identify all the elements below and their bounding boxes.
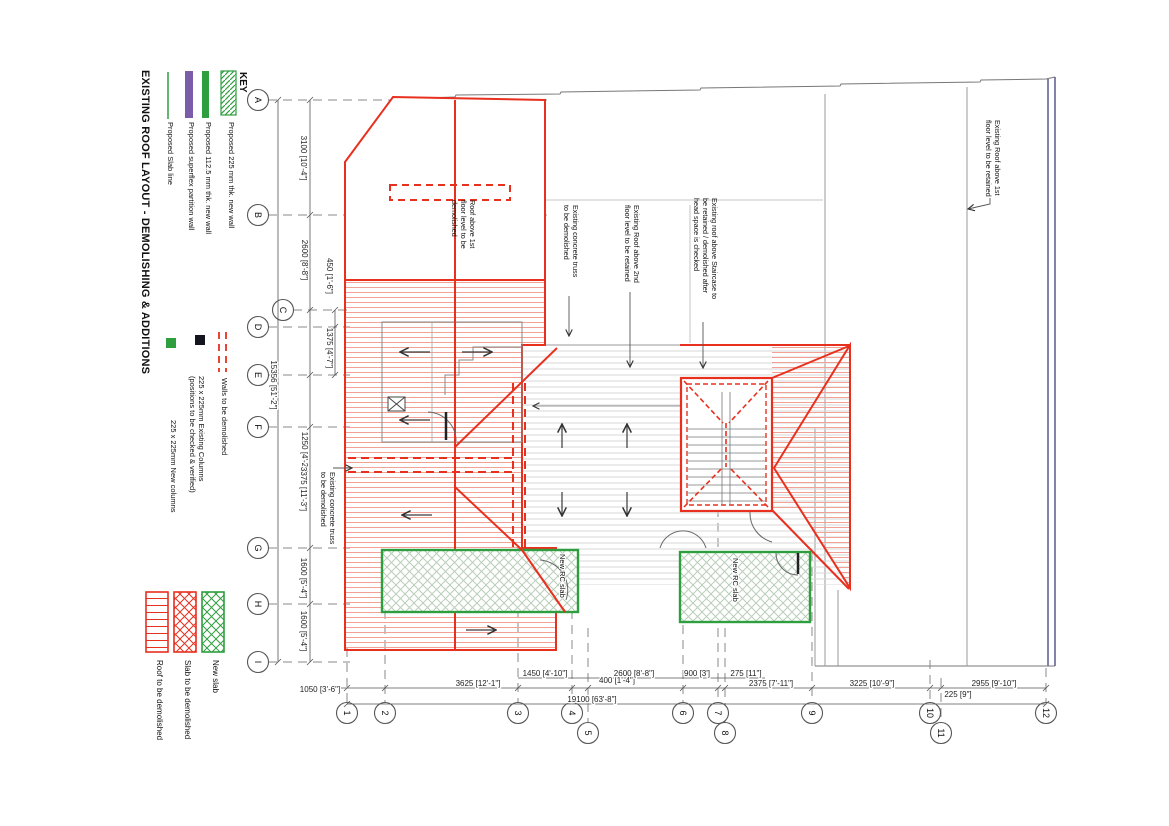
swatch-new-wall-112 <box>202 71 209 118</box>
dim-left-450: 450 [1'-6"] <box>325 258 334 294</box>
drawing-sheet: New RC slab New RC slab Roof above 1st f… <box>0 0 1169 826</box>
grid-col-7: 7 <box>713 710 723 715</box>
ann-roof2nd-l2: floor level to be retained <box>623 205 632 282</box>
swatch-new-column <box>166 338 176 348</box>
new-rc-slab-label-left: New RC slab <box>558 554 567 598</box>
grid-row-B: B <box>253 212 263 218</box>
ann-stair-l2: be retained / demolished after <box>701 198 710 294</box>
key-label-new-wall-112: Proposed 112.5 mm thk. new wall <box>204 122 213 234</box>
dim-bottom-2955: 2955 [9'-10"] <box>972 679 1017 688</box>
grid-col-bubbles: 1 2 3 4 5 6 7 8 9 10 11 12 <box>337 703 1057 744</box>
grid-col-5: 5 <box>583 730 593 735</box>
dim-left-1600a: 1600 [5'-4"] <box>299 558 308 598</box>
legend-roof-demolished: Roof to be demolished <box>155 660 164 740</box>
new-rc-slab-right <box>680 552 810 622</box>
key-label-new-columns: 225 x 225mm New columns <box>169 420 178 513</box>
grid-col-9: 9 <box>807 710 817 715</box>
grid-row-I: I <box>253 661 263 664</box>
ann-roof1st-retained-l2: floor level to be retained <box>984 120 993 197</box>
ann-roof1st-retained-l1: Existing Roof above 1st <box>993 120 1002 196</box>
grid-row-D: D <box>253 324 263 331</box>
grid-col-10: 10 <box>925 708 935 718</box>
dim-left-2600: 2600 [8'-8"] <box>300 240 309 280</box>
key-label-existing-columns-2: (positions to be checked & verified) <box>188 376 197 493</box>
grid-row-E: E <box>253 372 263 378</box>
ann-stair-l3: head space is checked <box>692 198 701 271</box>
swatch-new-slab <box>202 592 224 652</box>
grid-row-F: F <box>253 424 263 430</box>
new-rc-slab-label-right: New RC slab <box>731 558 740 602</box>
ann-truss-top-l1: Existing concrete truss <box>571 205 580 278</box>
dim-bottom-275: 275 [11"] <box>730 669 761 678</box>
legend-new-slab: New slab <box>211 660 220 693</box>
grid-row-A: A <box>253 97 263 103</box>
dim-left-3100: 3100 [10'-4"] <box>299 136 308 181</box>
dim-left-1600b: 1600 [5'-4"] <box>299 611 308 651</box>
dim-bottom-900: 900 [3'] <box>684 669 710 678</box>
ann-stair-l1: Existing roof above Staircase to <box>710 198 719 299</box>
dim-bottom-1450: 1450 [4'-10"] <box>523 669 568 678</box>
ann-roof1st-l3: demolished <box>450 200 459 237</box>
roof-layout-drawing: New RC slab New RC slab Roof above 1st f… <box>0 0 1169 826</box>
key-label-walls-demolished: Walls to be demolished <box>220 378 229 455</box>
swatch-existing-column <box>195 335 205 345</box>
dim-left-3375: 3375 [11'-3"] <box>299 467 308 511</box>
grid-row-H: H <box>253 601 263 608</box>
swatch-new-wall-225 <box>221 71 236 115</box>
grid-col-11: 11 <box>936 728 946 737</box>
swatch-roof-demolished <box>146 592 168 652</box>
dim-bottom-3225: 3225 [10'-9"] <box>850 679 895 688</box>
legend-slab-demolished: Slab to be demolished <box>183 660 192 739</box>
swatch-superflex-partition <box>185 71 193 118</box>
ann-truss-left-l2: to be demolished <box>319 472 328 527</box>
page-title: EXISTING ROOF LAYOUT - DEMOLISHING & ADD… <box>139 70 151 374</box>
grid-col-8: 8 <box>720 730 730 735</box>
ann-truss-left-l1: Existing concrete truss <box>328 472 337 545</box>
dim-bottom-2375: 2375 [7'-11"] <box>749 679 793 688</box>
ann-roof2nd-l1: Existing Roof above 2nd <box>632 205 641 283</box>
swatch-slab-demolished <box>174 592 196 652</box>
grid-col-12: 12 <box>1041 708 1051 718</box>
grid-col-1: 1 <box>342 710 352 715</box>
grid-row-C: C <box>278 307 288 314</box>
key-label-slab-line: Proposed Slab line <box>166 122 175 185</box>
dim-bottom-225: 225 [9"] <box>944 690 971 699</box>
grid-col-4: 4 <box>567 710 577 715</box>
grid-col-6: 6 <box>678 710 688 715</box>
new-rc-slab-left <box>382 550 578 612</box>
dim-bottom-1050: 1050 [3'-6"] <box>300 685 340 694</box>
grid-col-3: 3 <box>513 710 523 715</box>
key-heading: KEY <box>237 72 248 93</box>
dim-bottom-overall: 19100 [63'-8"] <box>567 695 616 704</box>
key-label-existing-columns-1: 225 x 225mm Existing Columns <box>197 376 206 482</box>
ann-roof1st-l2: floor level to be <box>459 200 468 249</box>
grid-row-G: G <box>253 544 263 551</box>
ann-truss-top-l2: to be demolished <box>562 205 571 260</box>
dim-left-1375: 1375 [4'-7"] <box>325 328 334 368</box>
ann-roof1st-l1: Roof above 1st <box>468 200 477 248</box>
title-block: EXISTING ROOF LAYOUT - DEMOLISHING & ADD… <box>139 70 248 740</box>
grid-col-2: 2 <box>380 710 390 715</box>
key-label-superflex: Proposed superflex partition wall <box>187 122 196 231</box>
dim-bottom-3625: 3625 [12'-1"] <box>456 679 501 688</box>
dim-left-overall: 15356 [51'-2"] <box>269 360 278 409</box>
dim-bottom-2600: 2600 [8'-8"] <box>614 669 654 678</box>
key-label-new-wall-225: Proposed 225 mm thk. new wall <box>227 122 236 229</box>
